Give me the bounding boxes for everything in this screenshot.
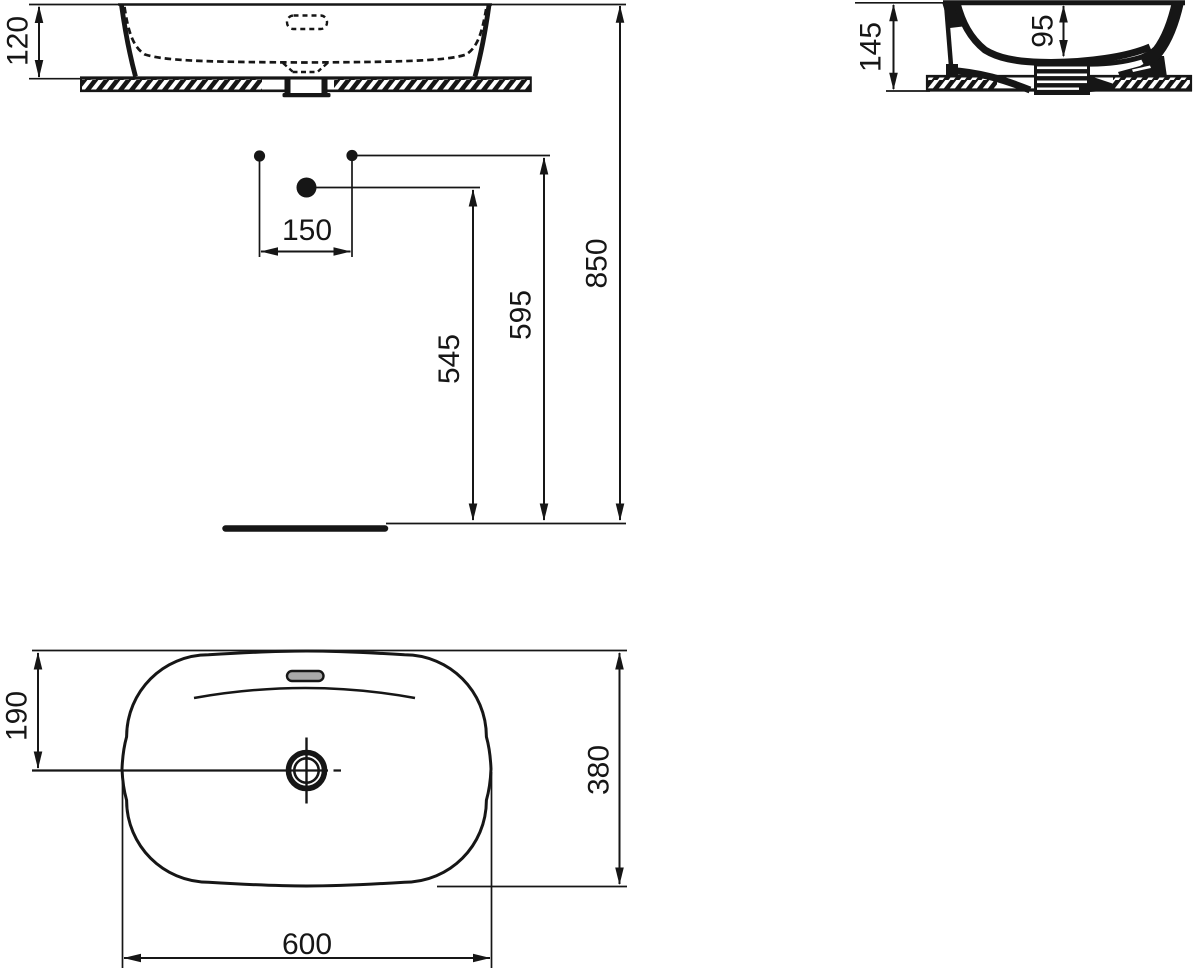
svg-text:850: 850 <box>581 238 614 288</box>
svg-text:595: 595 <box>505 290 538 340</box>
svg-text:150: 150 <box>282 214 332 247</box>
svg-text:545: 545 <box>433 334 466 384</box>
svg-text:95: 95 <box>1027 14 1060 47</box>
svg-text:145: 145 <box>855 22 888 72</box>
svg-text:120: 120 <box>2 16 35 66</box>
svg-text:190: 190 <box>1 691 34 741</box>
svg-text:600: 600 <box>282 928 332 961</box>
svg-text:380: 380 <box>583 745 616 795</box>
